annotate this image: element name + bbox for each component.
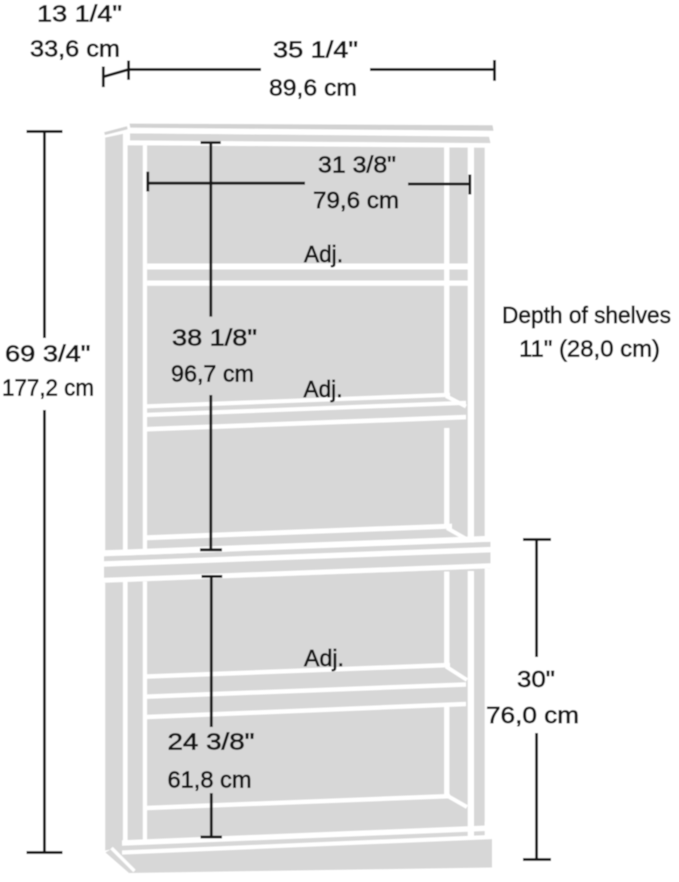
svg-text:Depth of shelves: Depth of shelves xyxy=(502,302,671,328)
svg-text:177,2 cm: 177,2 cm xyxy=(2,374,94,400)
svg-text:38 1/8": 38 1/8" xyxy=(172,325,257,351)
svg-text:79,6 cm: 79,6 cm xyxy=(313,187,399,213)
svg-text:61,8 cm: 61,8 cm xyxy=(168,767,252,793)
svg-text:89,6 cm: 89,6 cm xyxy=(269,75,357,101)
svg-text:11" (28,0 cm): 11" (28,0 cm) xyxy=(519,336,660,362)
svg-text:Adj.: Adj. xyxy=(304,376,343,402)
svg-text:30": 30" xyxy=(517,666,555,692)
svg-text:33,6 cm: 33,6 cm xyxy=(30,36,120,62)
svg-text:31 3/8": 31 3/8" xyxy=(318,152,396,178)
svg-text:35 1/4": 35 1/4" xyxy=(273,37,358,63)
svg-text:13 1/4": 13 1/4" xyxy=(37,1,122,27)
svg-text:Adj.: Adj. xyxy=(304,241,343,267)
svg-text:76,0 cm: 76,0 cm xyxy=(486,702,579,728)
svg-text:69 3/4": 69 3/4" xyxy=(5,341,91,367)
svg-text:24 3/8": 24 3/8" xyxy=(168,729,255,755)
svg-text:Adj.: Adj. xyxy=(304,645,344,671)
svg-text:96,7 cm: 96,7 cm xyxy=(171,361,254,387)
